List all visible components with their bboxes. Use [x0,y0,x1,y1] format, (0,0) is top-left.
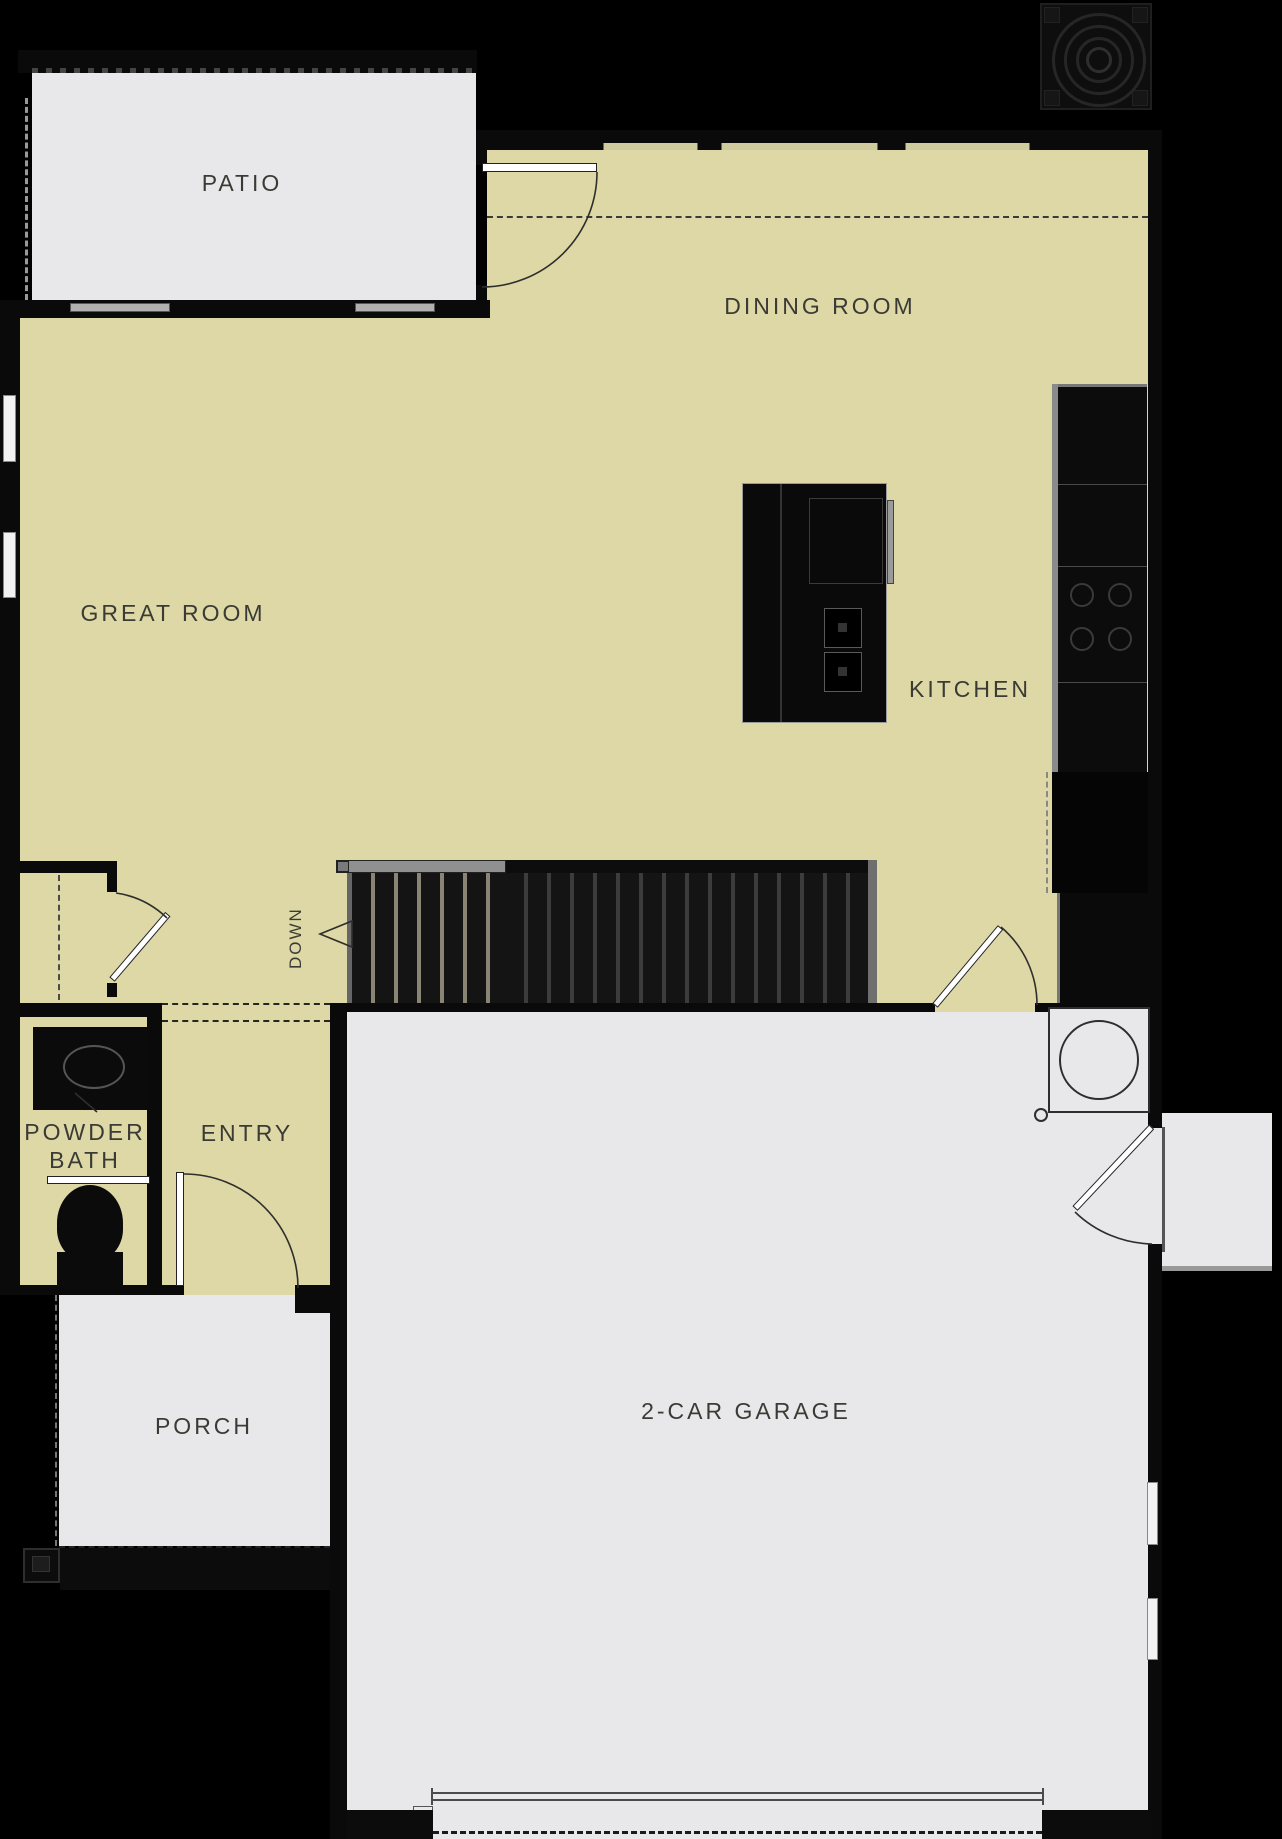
landing-bottom-edge [1162,1266,1272,1271]
window [355,303,435,312]
stair-handrail [336,860,506,873]
base-cabinet [1058,484,1147,566]
toilet [57,1185,123,1261]
dining-room-label: DINING ROOM [700,293,940,320]
burner-icon [1108,627,1132,651]
front-door-leaf [176,1172,184,1286]
hallway-edge-line [1057,893,1060,1003]
kitchen-label: KITCHEN [880,676,1060,703]
island-divider-line [780,484,782,722]
water-heater-platform [1048,1007,1150,1113]
porch-bottom-bar [60,1548,330,1590]
patio-cover-ticks [32,68,476,73]
window [1147,1598,1158,1660]
compass-rose-icon [1040,3,1152,110]
compass-corner [1132,7,1148,23]
island-sink [824,652,862,692]
closet-door-jamb-bottom [107,983,117,997]
window [70,303,170,312]
patio-door-leaf [482,163,597,172]
entry-opening-line-top [162,1003,330,1005]
window [905,143,1030,150]
garage-floor [347,1012,1150,1839]
vanity-sink [33,1027,147,1110]
garage-left-wall [330,1003,347,1839]
garage-front-wall-stub-left [347,1810,433,1839]
closet-top-wall [20,861,117,873]
landing-door-frame-line [1162,1127,1165,1252]
stair-treads-right [505,873,868,1003]
refrigerator [1058,384,1147,484]
compass-corner [1132,90,1148,106]
garage-door [433,1792,1042,1801]
compass-corner [1044,90,1060,106]
compass-corner [1044,7,1060,23]
island-cooktop [809,498,883,584]
patio-label: PATIO [162,170,322,197]
window [721,143,878,150]
porch-post [23,1548,60,1583]
stair-treads-left [352,873,505,1003]
garage-door-end-tick [431,1788,433,1805]
sink-drain-icon [838,667,847,676]
powder-bath-label-line1: POWDER [24,1119,146,1145]
side-door-threshold [1148,1128,1162,1244]
water-heater-tank [1059,1020,1139,1100]
toilet-base [57,1252,123,1287]
down-label: DOWN [286,900,312,976]
garage-label: 2-CAR GARAGE [626,1398,866,1425]
closet-door-jamb-top [107,873,117,892]
stair-right-cap [868,860,877,1003]
kitchen-island [742,483,887,723]
island-sink [824,608,862,648]
porch-post-inner [32,1556,50,1572]
patio-open-edge [25,98,28,300]
range-cooktop [1058,566,1147,682]
ceiling-break-line [487,216,1148,218]
garage-top-wall-left [347,1003,935,1012]
pantry-cabinet [1052,772,1148,893]
burner-icon [1070,583,1094,607]
powder-bath-label: POWDER BATH [10,1118,160,1174]
garage-front-wall-stub-right [1042,1810,1150,1839]
porch-open-edge-left [55,1295,57,1546]
entry-floor [162,1003,330,1295]
sink-bowl-icon [63,1045,125,1089]
stair-handrail-post [337,861,349,872]
toilet-tank [47,1176,150,1184]
burner-icon [1070,627,1094,651]
floor-plan: PATIO DINING ROOM GREAT ROOM KITCHEN POW… [0,0,1282,1839]
window [3,395,16,462]
right-exterior-wall-upper [1148,130,1162,1128]
entry-opening-line-bottom [162,1020,330,1022]
kitchen-hall-wall [1060,893,1148,1003]
compass-ring [1086,47,1112,73]
window [1147,1482,1158,1545]
closet-powder-wall [20,1003,162,1017]
sink-drain-icon [838,623,847,632]
powder-bath-label-line2: BATH [49,1147,121,1173]
island-counter-tab [887,500,894,584]
window [603,143,698,150]
great-room-label: GREAT ROOM [63,600,283,627]
side-landing-floor [1162,1113,1272,1270]
stair-left-edge [347,873,352,1003]
garage-door-end-tick [1042,1788,1044,1805]
entry-label: ENTRY [167,1120,327,1147]
burner-icon [1108,583,1132,607]
pantry-dashed-edge [1046,772,1048,893]
closet-rod-line [58,875,60,1000]
garage-threshold-line [433,1831,1042,1834]
base-cabinet [1058,682,1147,772]
window [3,532,16,598]
door-stop-icon [1034,1108,1048,1122]
porch-label: PORCH [124,1413,284,1440]
